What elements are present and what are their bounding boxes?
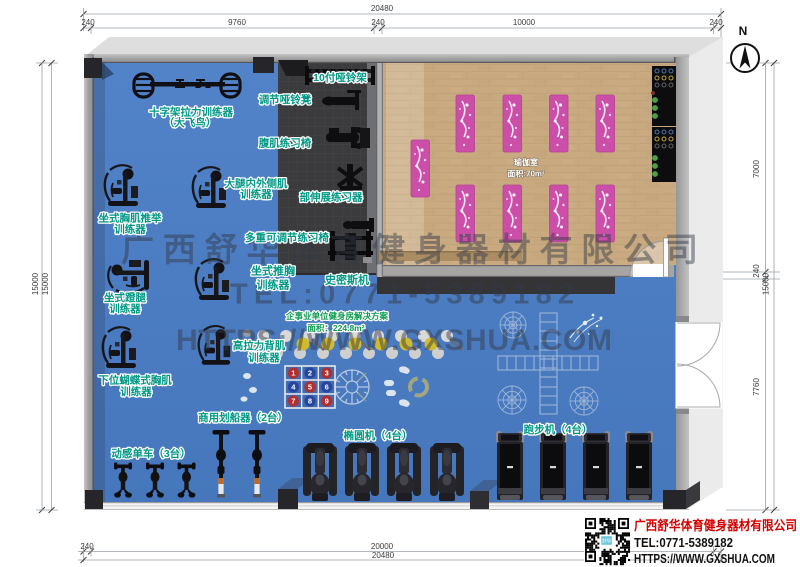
- svg-text:调节哑铃凳: 调节哑铃凳: [259, 93, 312, 106]
- svg-text:8: 8: [308, 397, 312, 406]
- svg-text:训练器: 训练器: [248, 351, 280, 364]
- svg-text:10000: 10000: [513, 18, 536, 27]
- svg-text:企事业单位健身房解决方案: 企事业单位健身房解决方案: [285, 311, 389, 321]
- svg-text:高拉力背肌: 高拉力背肌: [233, 339, 286, 352]
- svg-text:史密斯机: 史密斯机: [325, 273, 369, 287]
- svg-text:20480: 20480: [372, 551, 395, 560]
- svg-text:部伸展练习器: 部伸展练习器: [300, 191, 363, 204]
- svg-text:2: 2: [308, 369, 312, 378]
- svg-text:多重可调节练习椅: 多重可调节练习椅: [245, 231, 329, 244]
- svg-text:训练器: 训练器: [240, 188, 272, 201]
- svg-text:3: 3: [325, 369, 329, 378]
- svg-text:动感单车（3台）: 动感单车（3台）: [111, 447, 190, 460]
- svg-text:5: 5: [308, 383, 312, 392]
- svg-text:舒华: 舒华: [602, 538, 611, 545]
- svg-text:广西舒华体育健身器材有限公司: 广西舒华体育健身器材有限公司: [634, 518, 797, 533]
- svg-text:（大飞鸟）: （大飞鸟）: [164, 116, 217, 129]
- svg-text:面积：224.8m²: 面积：224.8m²: [307, 323, 364, 333]
- svg-text:下位蝴蝶式胸肌: 下位蝴蝶式胸肌: [98, 374, 172, 387]
- svg-text:腹肌练习椅: 腹肌练习椅: [259, 137, 312, 150]
- svg-text:240: 240: [371, 18, 385, 27]
- svg-text:HTTPS://WWW.GXSHUA.COM: HTTPS://WWW.GXSHUA.COM: [634, 551, 775, 566]
- svg-text:20000: 20000: [371, 542, 394, 551]
- svg-text:240: 240: [752, 264, 761, 278]
- svg-text:椭圆机（4台）: 椭圆机（4台）: [344, 429, 413, 442]
- svg-text:训练器: 训练器: [257, 278, 291, 292]
- svg-text:10付哑铃架: 10付哑铃架: [313, 71, 367, 84]
- svg-text:20480: 20480: [371, 4, 394, 13]
- svg-text:1: 1: [291, 369, 295, 378]
- svg-text:240: 240: [80, 542, 94, 551]
- svg-text:6: 6: [325, 383, 329, 392]
- svg-text:训练器: 训练器: [109, 302, 141, 315]
- svg-text:15000: 15000: [31, 272, 40, 295]
- svg-text:7: 7: [291, 397, 295, 406]
- svg-text:240: 240: [709, 18, 723, 27]
- svg-text:跑步机（4台）: 跑步机（4台）: [524, 423, 593, 436]
- svg-text:7760: 7760: [752, 378, 761, 396]
- svg-text:商用划船器（2台）: 商用划船器（2台）: [198, 411, 288, 424]
- svg-text:7000: 7000: [752, 160, 761, 178]
- svg-text:面积:70m²: 面积:70m²: [507, 169, 545, 179]
- svg-text:瑜伽室: 瑜伽室: [514, 157, 538, 167]
- svg-text:坐式推胸: 坐式推胸: [251, 264, 295, 278]
- svg-text:15000: 15000: [41, 272, 50, 295]
- svg-text:训练器: 训练器: [120, 385, 152, 398]
- svg-text:240: 240: [81, 18, 95, 27]
- svg-text:TEL:0771-5389182: TEL:0771-5389182: [634, 535, 733, 550]
- svg-text:15000: 15000: [762, 272, 771, 295]
- svg-text:N: N: [739, 24, 748, 38]
- svg-text:9760: 9760: [228, 18, 246, 27]
- svg-text:9: 9: [325, 397, 329, 406]
- svg-text:训练器: 训练器: [114, 223, 146, 236]
